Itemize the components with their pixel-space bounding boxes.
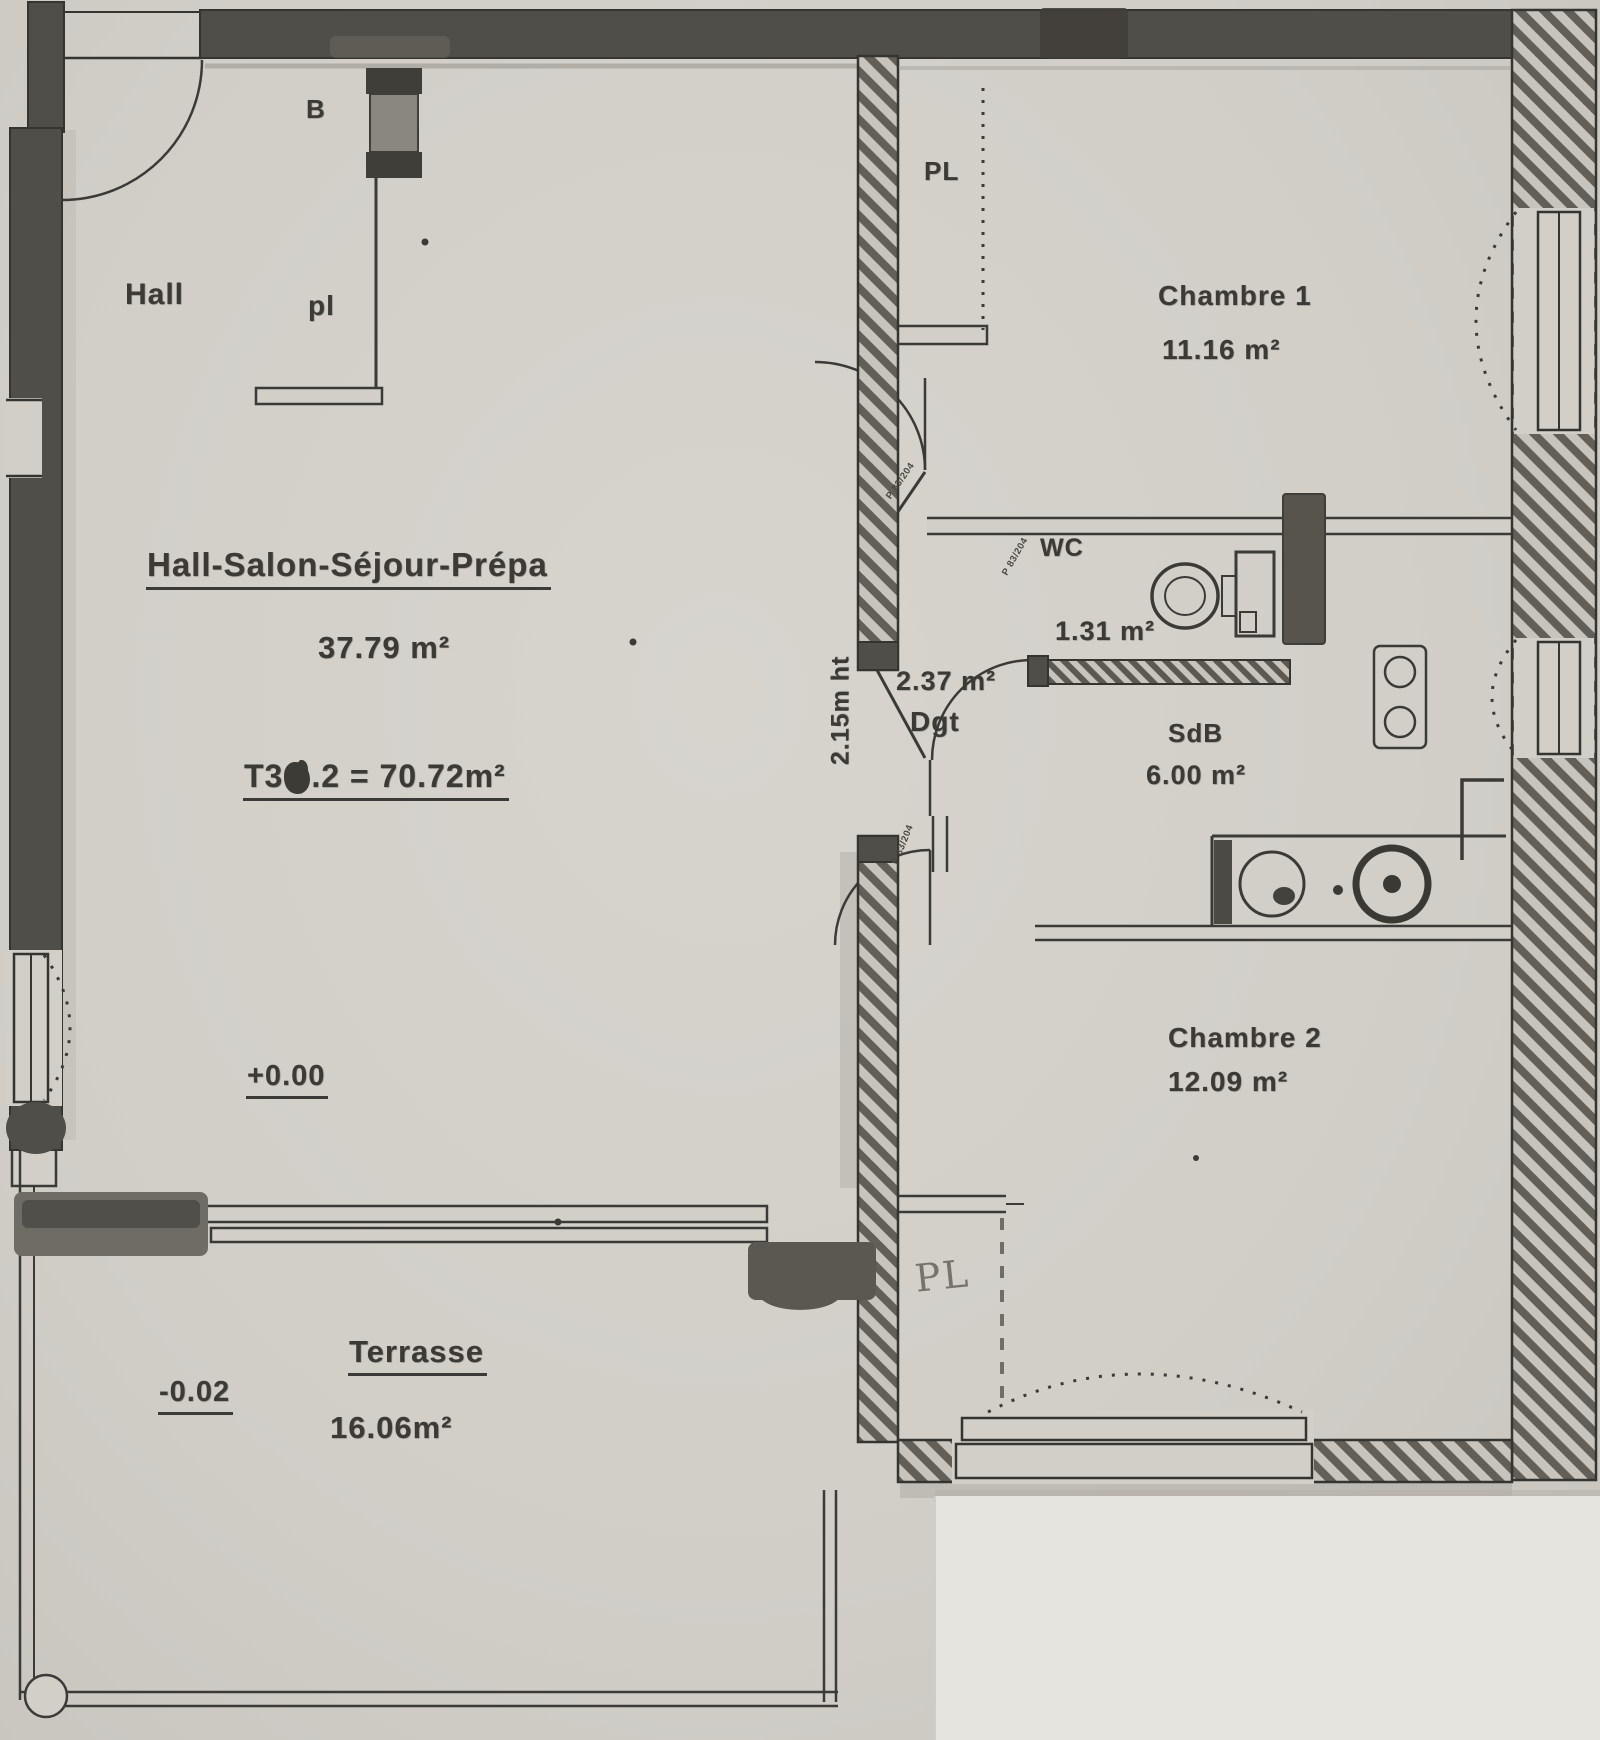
- wc-area: 1.31 m²: [1055, 616, 1155, 647]
- ceiling-height-note: 2.15m ht: [827, 626, 856, 796]
- corridor-wall-lower: [858, 836, 898, 1442]
- terrasse-corner-post: [25, 1675, 67, 1717]
- chambre2-area: 12.09 m²: [1168, 1066, 1288, 1098]
- living-title: Hall-Salon-Séjour-Prépa: [146, 546, 551, 590]
- terrasse-level: -0.02: [158, 1376, 233, 1415]
- chambre1-area: 11.16 m²: [1162, 334, 1281, 366]
- toilet-icon: [1152, 564, 1218, 628]
- living-level: +0.00: [246, 1060, 328, 1099]
- hall-label: Hall: [125, 278, 184, 312]
- wc-label: WC: [1040, 534, 1084, 563]
- dgt-area: 2.37 m²: [896, 666, 996, 697]
- wc-sdb-wall: [1032, 660, 1290, 684]
- ink-smudges: [6, 8, 1199, 1310]
- plan-type-suffix: .2 = 70.72m²: [311, 758, 505, 794]
- sdb-area: 6.00 m²: [1146, 760, 1246, 791]
- corridor-wall-upper: [858, 56, 898, 670]
- floorplan-drawing: [0, 0, 1600, 1740]
- chambre2-closet-label: PL: [913, 1251, 972, 1300]
- washbasin-icon: [1240, 852, 1304, 916]
- pl-closet-stub: [893, 326, 987, 344]
- bay-window: [205, 1206, 767, 1242]
- plan-type-line: T3.2 = 70.72m²: [243, 758, 509, 801]
- corridor-closet-label: PL: [924, 156, 959, 187]
- chambre2-label: Chambre 2: [1168, 1022, 1322, 1054]
- floorplan-scan: Hall B pl PL Chambre 1 11.16 m² Hall-Sal…: [0, 0, 1600, 1740]
- hall-column: [366, 68, 422, 94]
- dgt-label: Dgt: [910, 706, 960, 738]
- wc-side-wall: [1283, 494, 1325, 644]
- hall-closet-return: [256, 388, 382, 404]
- counter-return: [1462, 780, 1504, 860]
- paper-overlay: [935, 1490, 1600, 1740]
- terrasse-label: Terrasse: [348, 1334, 487, 1376]
- closet-b-label: B: [306, 94, 326, 125]
- chambre1-label: Chambre 1: [1158, 280, 1312, 312]
- radiator-icon: [1374, 646, 1426, 748]
- top-left-bracket: [28, 2, 64, 132]
- sdb-label: SdB: [1168, 718, 1223, 749]
- chambre2-window: [962, 1418, 1306, 1440]
- hall-closet-label: pl: [308, 290, 335, 322]
- entrance-door-arc: [62, 60, 202, 200]
- ink-blot: [284, 762, 310, 794]
- living-area: 37.79 m²: [318, 630, 450, 666]
- plan-type-prefix: T3: [244, 758, 283, 794]
- terrasse-area: 16.06m²: [330, 1410, 452, 1446]
